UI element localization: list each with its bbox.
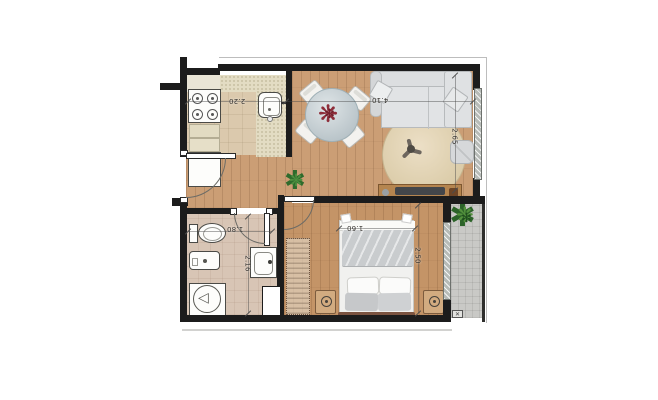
wall-living-right-upper xyxy=(473,64,480,90)
dim-bathroom-width: 1.80 xyxy=(223,224,247,233)
balcony-plant-icon: ✱ ❋ ✻ xyxy=(449,199,485,237)
bedroom-balcony-window xyxy=(443,222,451,300)
outer-line-right xyxy=(486,57,487,323)
toilet-bowl xyxy=(198,223,226,243)
floor-plan: ❋ ✻ ✱ ❋ ◁ xyxy=(0,0,658,400)
console-dish xyxy=(382,189,389,196)
wall-bedroom-top xyxy=(314,196,443,203)
bed-cushion-left xyxy=(345,293,378,312)
shower: ◁ xyxy=(189,283,226,316)
dim-kitchen-width: 2.20 xyxy=(225,96,249,105)
living-window xyxy=(474,88,482,180)
dim-living-depth: 2.65 xyxy=(450,125,459,149)
dim-bedroom-depth: 2.50 xyxy=(413,244,422,268)
wall-stub-top-left xyxy=(160,83,186,90)
bed xyxy=(339,220,414,316)
dim-living-width: 4.10 xyxy=(368,95,392,104)
outer-line-top xyxy=(219,57,486,58)
wall-kitchen-living xyxy=(286,64,292,157)
plant-icon: ✱ ❋ xyxy=(284,168,314,198)
dim-bed-width: 1.60 xyxy=(343,223,367,232)
wall-left-lower xyxy=(180,205,187,322)
nightstand-right xyxy=(423,290,444,314)
bed-flap-right xyxy=(401,213,412,224)
wall-bedroom-right-lower xyxy=(443,298,451,322)
wardrobe xyxy=(286,238,310,315)
drain-dot xyxy=(267,116,273,122)
outer-line-bottom xyxy=(182,329,452,331)
bed-cushion-right xyxy=(378,293,411,312)
wall-living-right-lower xyxy=(473,178,480,196)
wall-bedroom-right-upper xyxy=(443,204,451,224)
wall-top xyxy=(218,64,479,71)
wall-balcony-right xyxy=(482,204,485,322)
wall-bath-top-left xyxy=(186,208,236,214)
flower-centerpiece-icon: ❋ ✻ xyxy=(317,101,347,131)
wall-balcony-top xyxy=(443,196,485,204)
toilet-tank xyxy=(189,224,198,243)
wall-left-upper xyxy=(180,57,187,157)
floor-drain-icon: ✕ xyxy=(452,310,463,318)
counter-module-2 xyxy=(189,138,220,152)
dim-bathroom-depth: 2.16 xyxy=(243,252,252,276)
ceiling-fan-icon xyxy=(399,137,423,161)
stove xyxy=(188,89,221,123)
shower-icon: ◁ xyxy=(198,290,209,307)
bed-blanket xyxy=(342,230,413,267)
wall-bottom xyxy=(180,315,451,322)
tv xyxy=(395,187,445,195)
bidet xyxy=(189,251,220,270)
nightstand-left xyxy=(315,290,336,314)
counter-module-1 xyxy=(189,124,220,138)
kitchen-sink xyxy=(258,92,282,118)
wall-top-left-connector xyxy=(186,68,220,75)
duct-niche xyxy=(262,286,281,316)
vanity xyxy=(250,247,277,278)
